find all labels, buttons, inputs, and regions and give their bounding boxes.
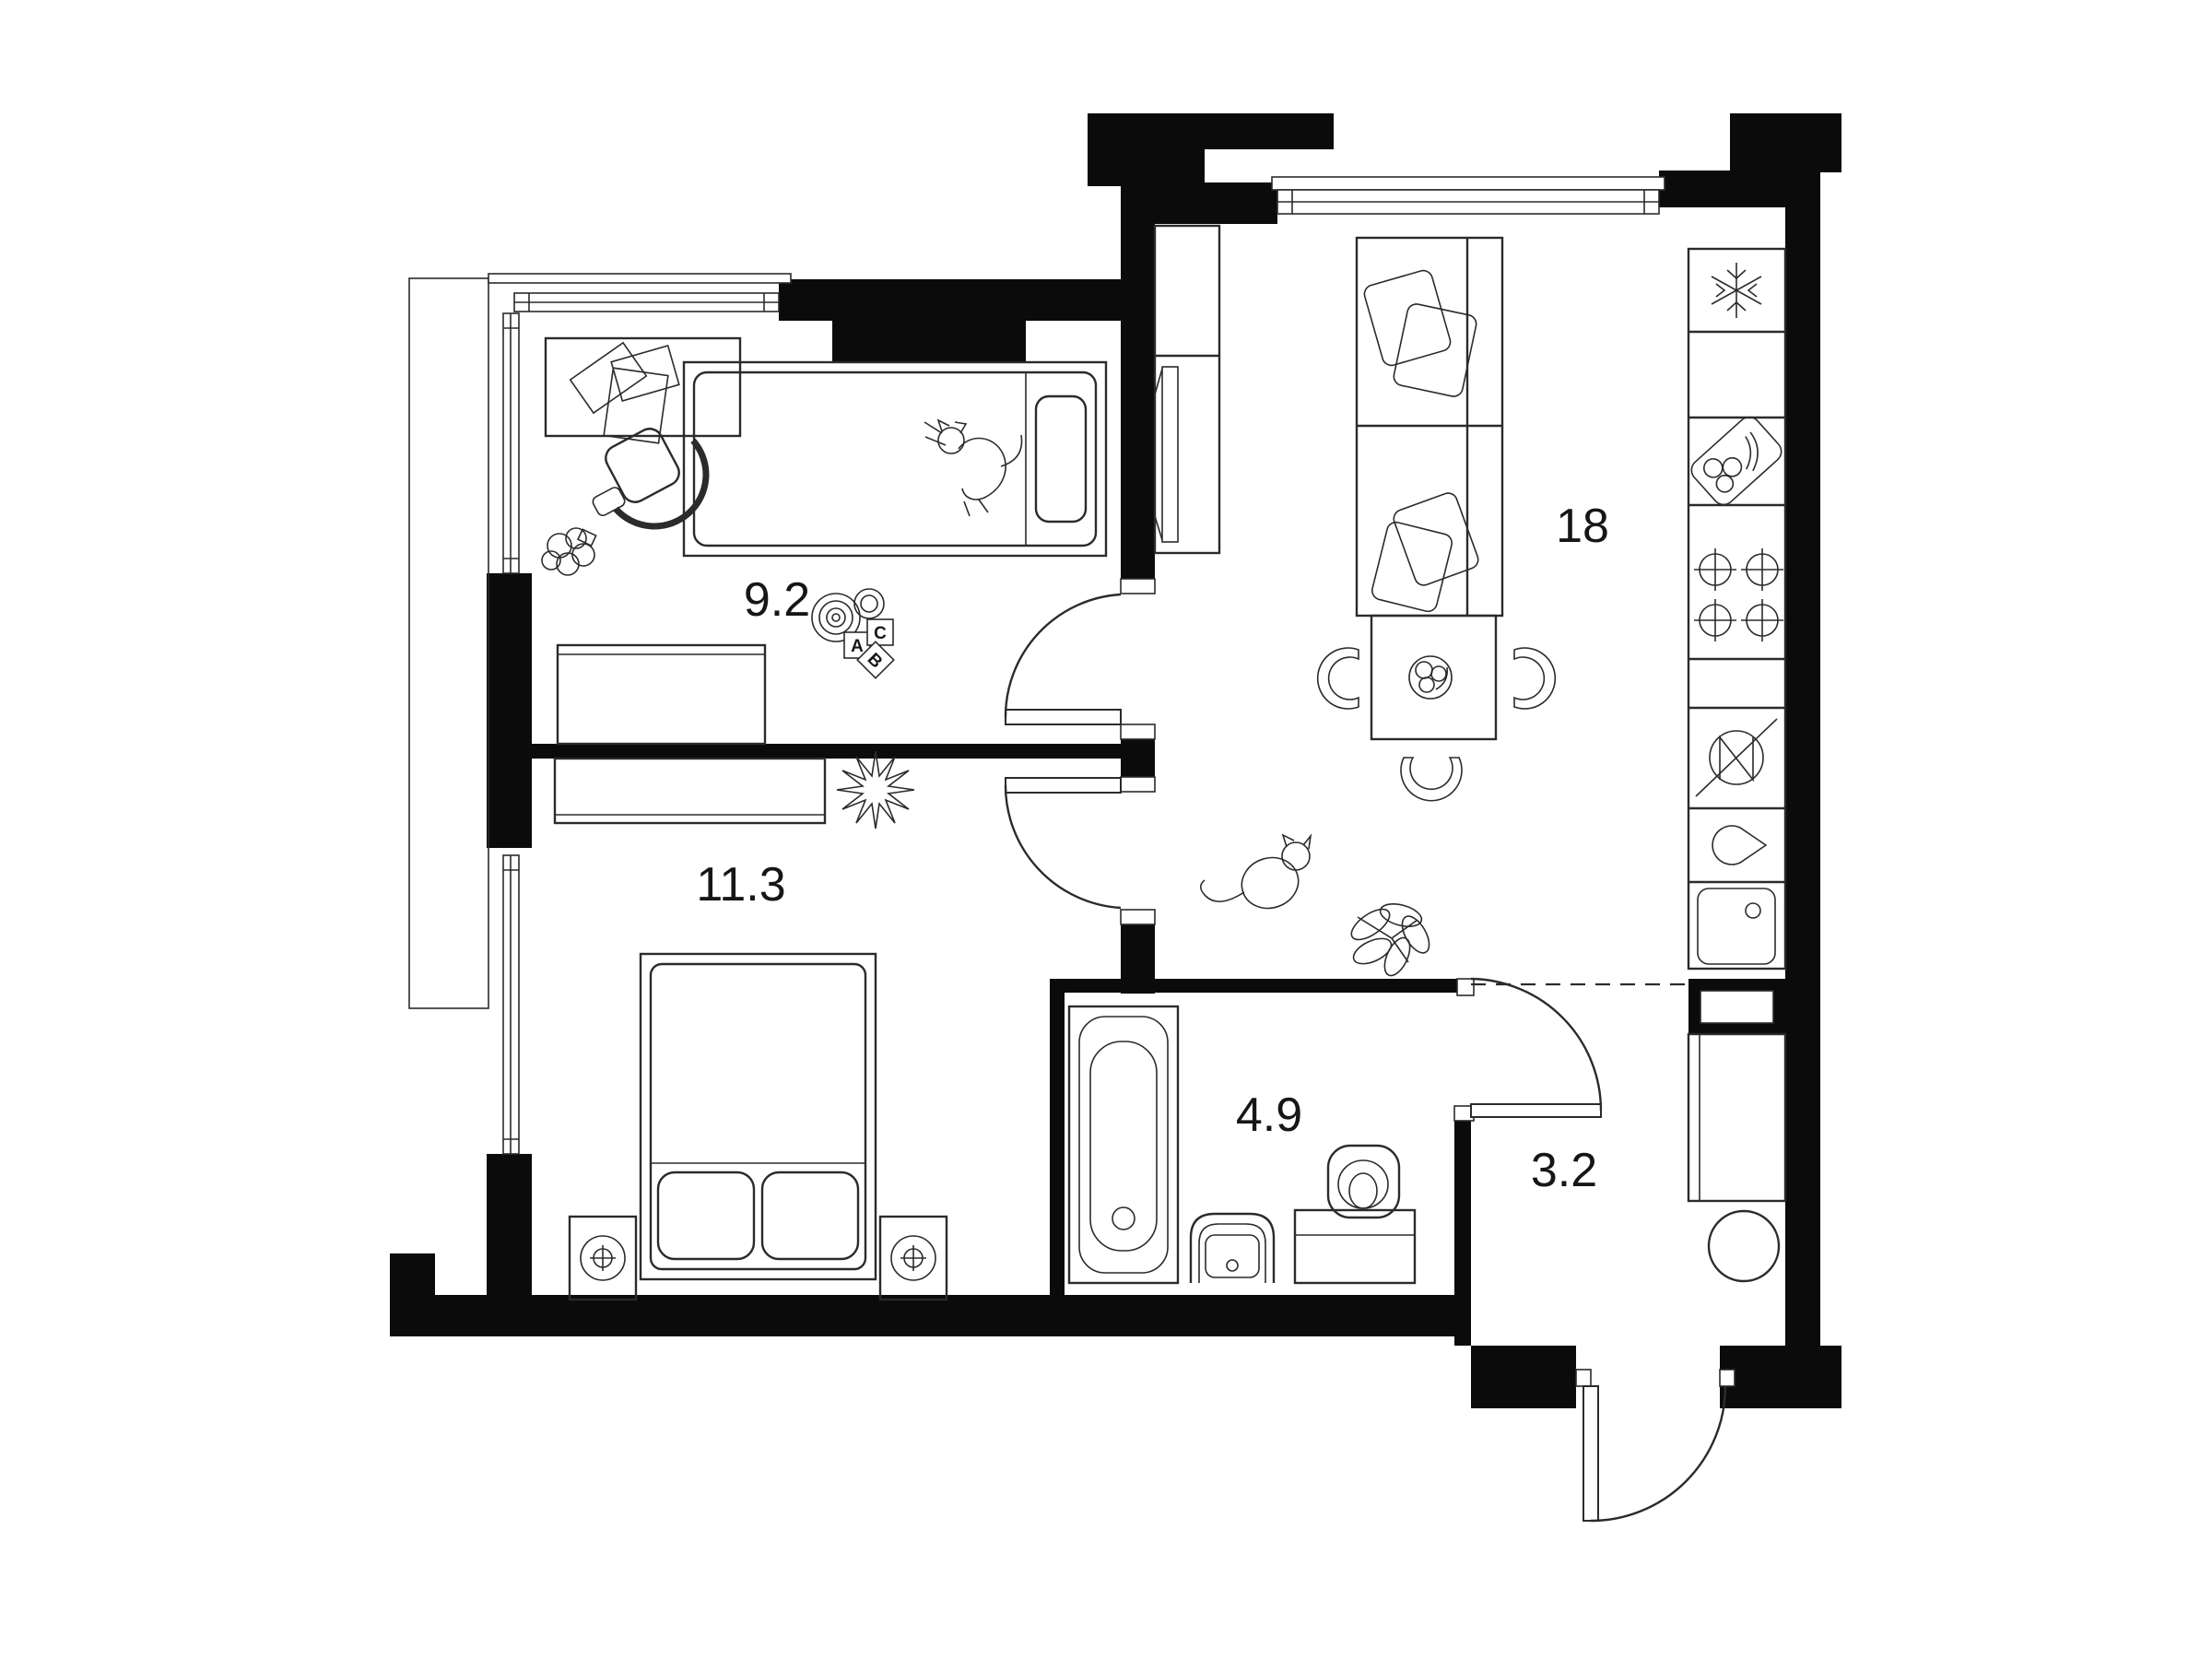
child-bed	[684, 362, 1106, 556]
plant-living	[1347, 900, 1434, 979]
room-hallway: 3.2	[1471, 979, 1785, 1281]
door-swing-arc	[1006, 785, 1121, 908]
area-label-child-room: 9.2	[744, 573, 810, 627]
sofa-pillow	[1362, 268, 1453, 367]
door-swing-arc	[1006, 594, 1121, 717]
floor-plan-drawing: A C B 9.2	[0, 0, 2212, 1659]
door-entrance	[1576, 1370, 1735, 1521]
door-bedroom	[1006, 777, 1155, 924]
wardrobe-bedroom	[555, 759, 825, 823]
faucet-icon	[1712, 826, 1766, 865]
window-living-top	[1272, 177, 1665, 214]
area-label-bedroom: 11.3	[696, 858, 785, 912]
sofa	[1357, 238, 1502, 616]
dining-chair-right	[1514, 648, 1555, 709]
double-bed	[641, 954, 876, 1279]
sofa-pillow	[1392, 302, 1477, 398]
toilet	[1295, 1146, 1415, 1283]
wardrobe-child	[558, 645, 765, 744]
desk-chair	[591, 424, 706, 526]
area-label-bathroom: 4.9	[1236, 1088, 1302, 1142]
room-bedroom: 11.3	[555, 751, 947, 1300]
kitchen-counter	[1687, 249, 1785, 969]
desk-papers	[571, 343, 679, 443]
window-bedroom-left	[503, 855, 519, 1154]
bed-pillow	[762, 1172, 858, 1259]
svg-text:C: C	[874, 624, 887, 643]
nightstand-right	[880, 1217, 947, 1300]
door-swing-arc	[1471, 979, 1601, 1111]
bed-pillow	[1036, 396, 1086, 522]
dining-chair-left	[1318, 648, 1359, 709]
water-heater	[1709, 1211, 1779, 1281]
hob-burners-icon	[1694, 548, 1783, 641]
fridge-icon	[1712, 263, 1761, 318]
oven-icon	[1696, 719, 1777, 796]
door-bathroom	[1454, 979, 1601, 1121]
toy-block-c: C	[867, 619, 893, 645]
hall-wardrobe	[1688, 1034, 1785, 1201]
bay-outline	[409, 278, 488, 1008]
cat-on-bed	[924, 420, 1022, 516]
area-label-hallway: 3.2	[1531, 1144, 1597, 1197]
bathroom-sink	[1191, 1214, 1274, 1283]
sofa-pillow	[1371, 521, 1454, 614]
bathtub	[1069, 1006, 1178, 1283]
dining-chair-bottom	[1401, 758, 1462, 801]
dining-table	[1371, 616, 1496, 739]
duct-shaft	[1688, 979, 1785, 1034]
desk	[546, 338, 740, 443]
area-label-living: 18	[1556, 500, 1609, 553]
door-child-room	[1006, 579, 1155, 739]
window-child-left	[503, 313, 519, 573]
toys: A C B	[812, 589, 894, 678]
wardrobe-living	[1155, 226, 1219, 553]
nightstand-left	[570, 1217, 636, 1300]
floor-plan-page: A C B 9.2	[0, 0, 2212, 1659]
cat-living	[1201, 835, 1311, 915]
bed-pillow	[658, 1172, 754, 1259]
room-bathroom: 4.9	[1069, 1006, 1415, 1283]
plant-small	[542, 528, 596, 575]
window-child-top	[488, 274, 791, 312]
door-swing-arc	[1591, 1386, 1725, 1521]
fruit-tray-icon	[1687, 413, 1785, 510]
fruit-bowl	[1409, 656, 1452, 699]
svg-text:A: A	[851, 637, 864, 656]
plant-star	[837, 751, 914, 829]
kitchen-sink	[1698, 888, 1775, 964]
room-child: A C B 9.2	[542, 338, 1106, 744]
room-living-kitchen: 18	[1155, 226, 1786, 980]
